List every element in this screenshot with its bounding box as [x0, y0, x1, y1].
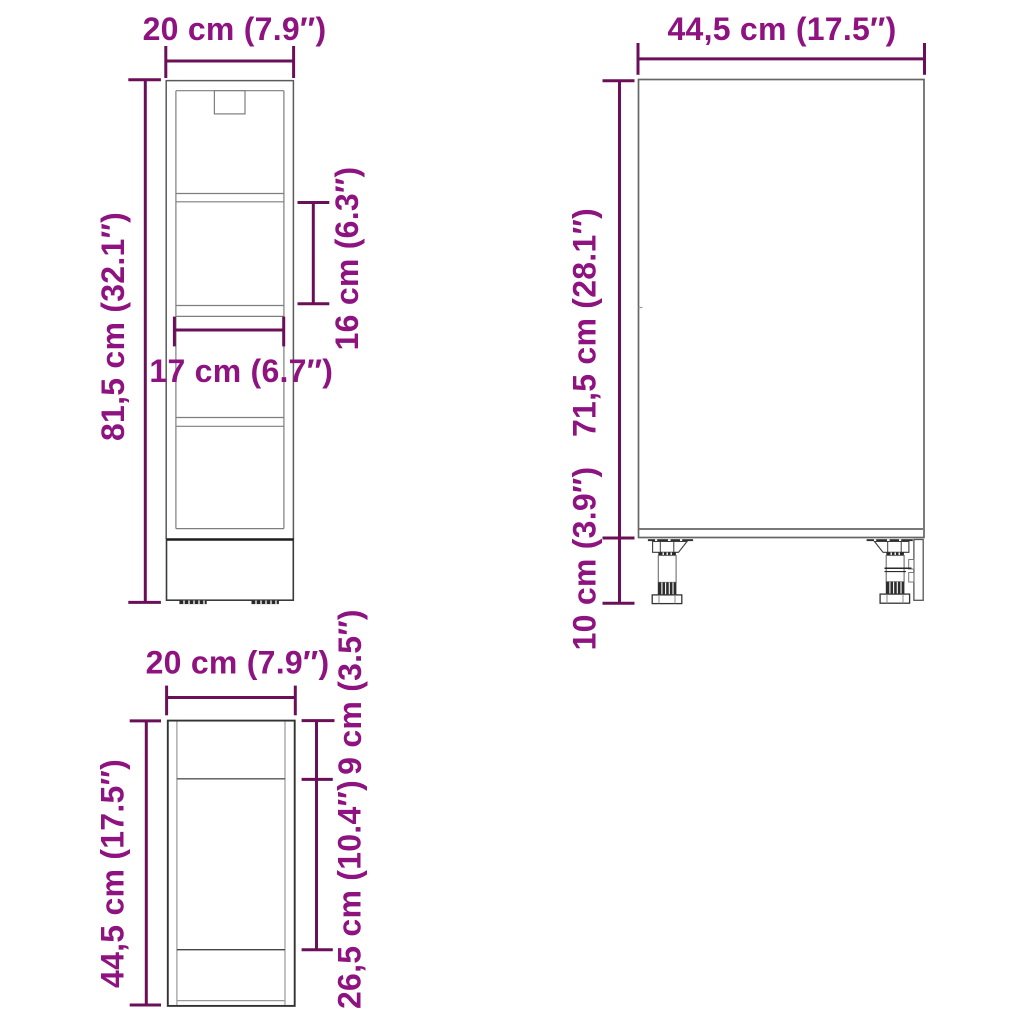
svg-text:20 cm (7.9″): 20 cm (7.9″) [146, 645, 330, 681]
svg-text:9 cm (3.5″): 9 cm (3.5″) [332, 609, 368, 775]
svg-text:44,5 cm (17.5″): 44,5 cm (17.5″) [95, 759, 131, 988]
svg-text:71,5 cm (28.1″): 71,5 cm (28.1″) [567, 208, 603, 437]
svg-text:17 cm (6.7″): 17 cm (6.7″) [149, 353, 333, 389]
svg-text:26,5 cm (10.4″): 26,5 cm (10.4″) [332, 780, 368, 1009]
svg-text:20 cm (7.9″): 20 cm (7.9″) [143, 11, 327, 47]
svg-text:81,5 cm (32.1″): 81,5 cm (32.1″) [95, 212, 131, 441]
svg-text:44,5 cm (17.5″): 44,5 cm (17.5″) [668, 11, 897, 47]
svg-text:10 cm (3.9″): 10 cm (3.9″) [567, 467, 603, 651]
svg-text:16 cm (6.3″): 16 cm (6.3″) [329, 167, 365, 351]
